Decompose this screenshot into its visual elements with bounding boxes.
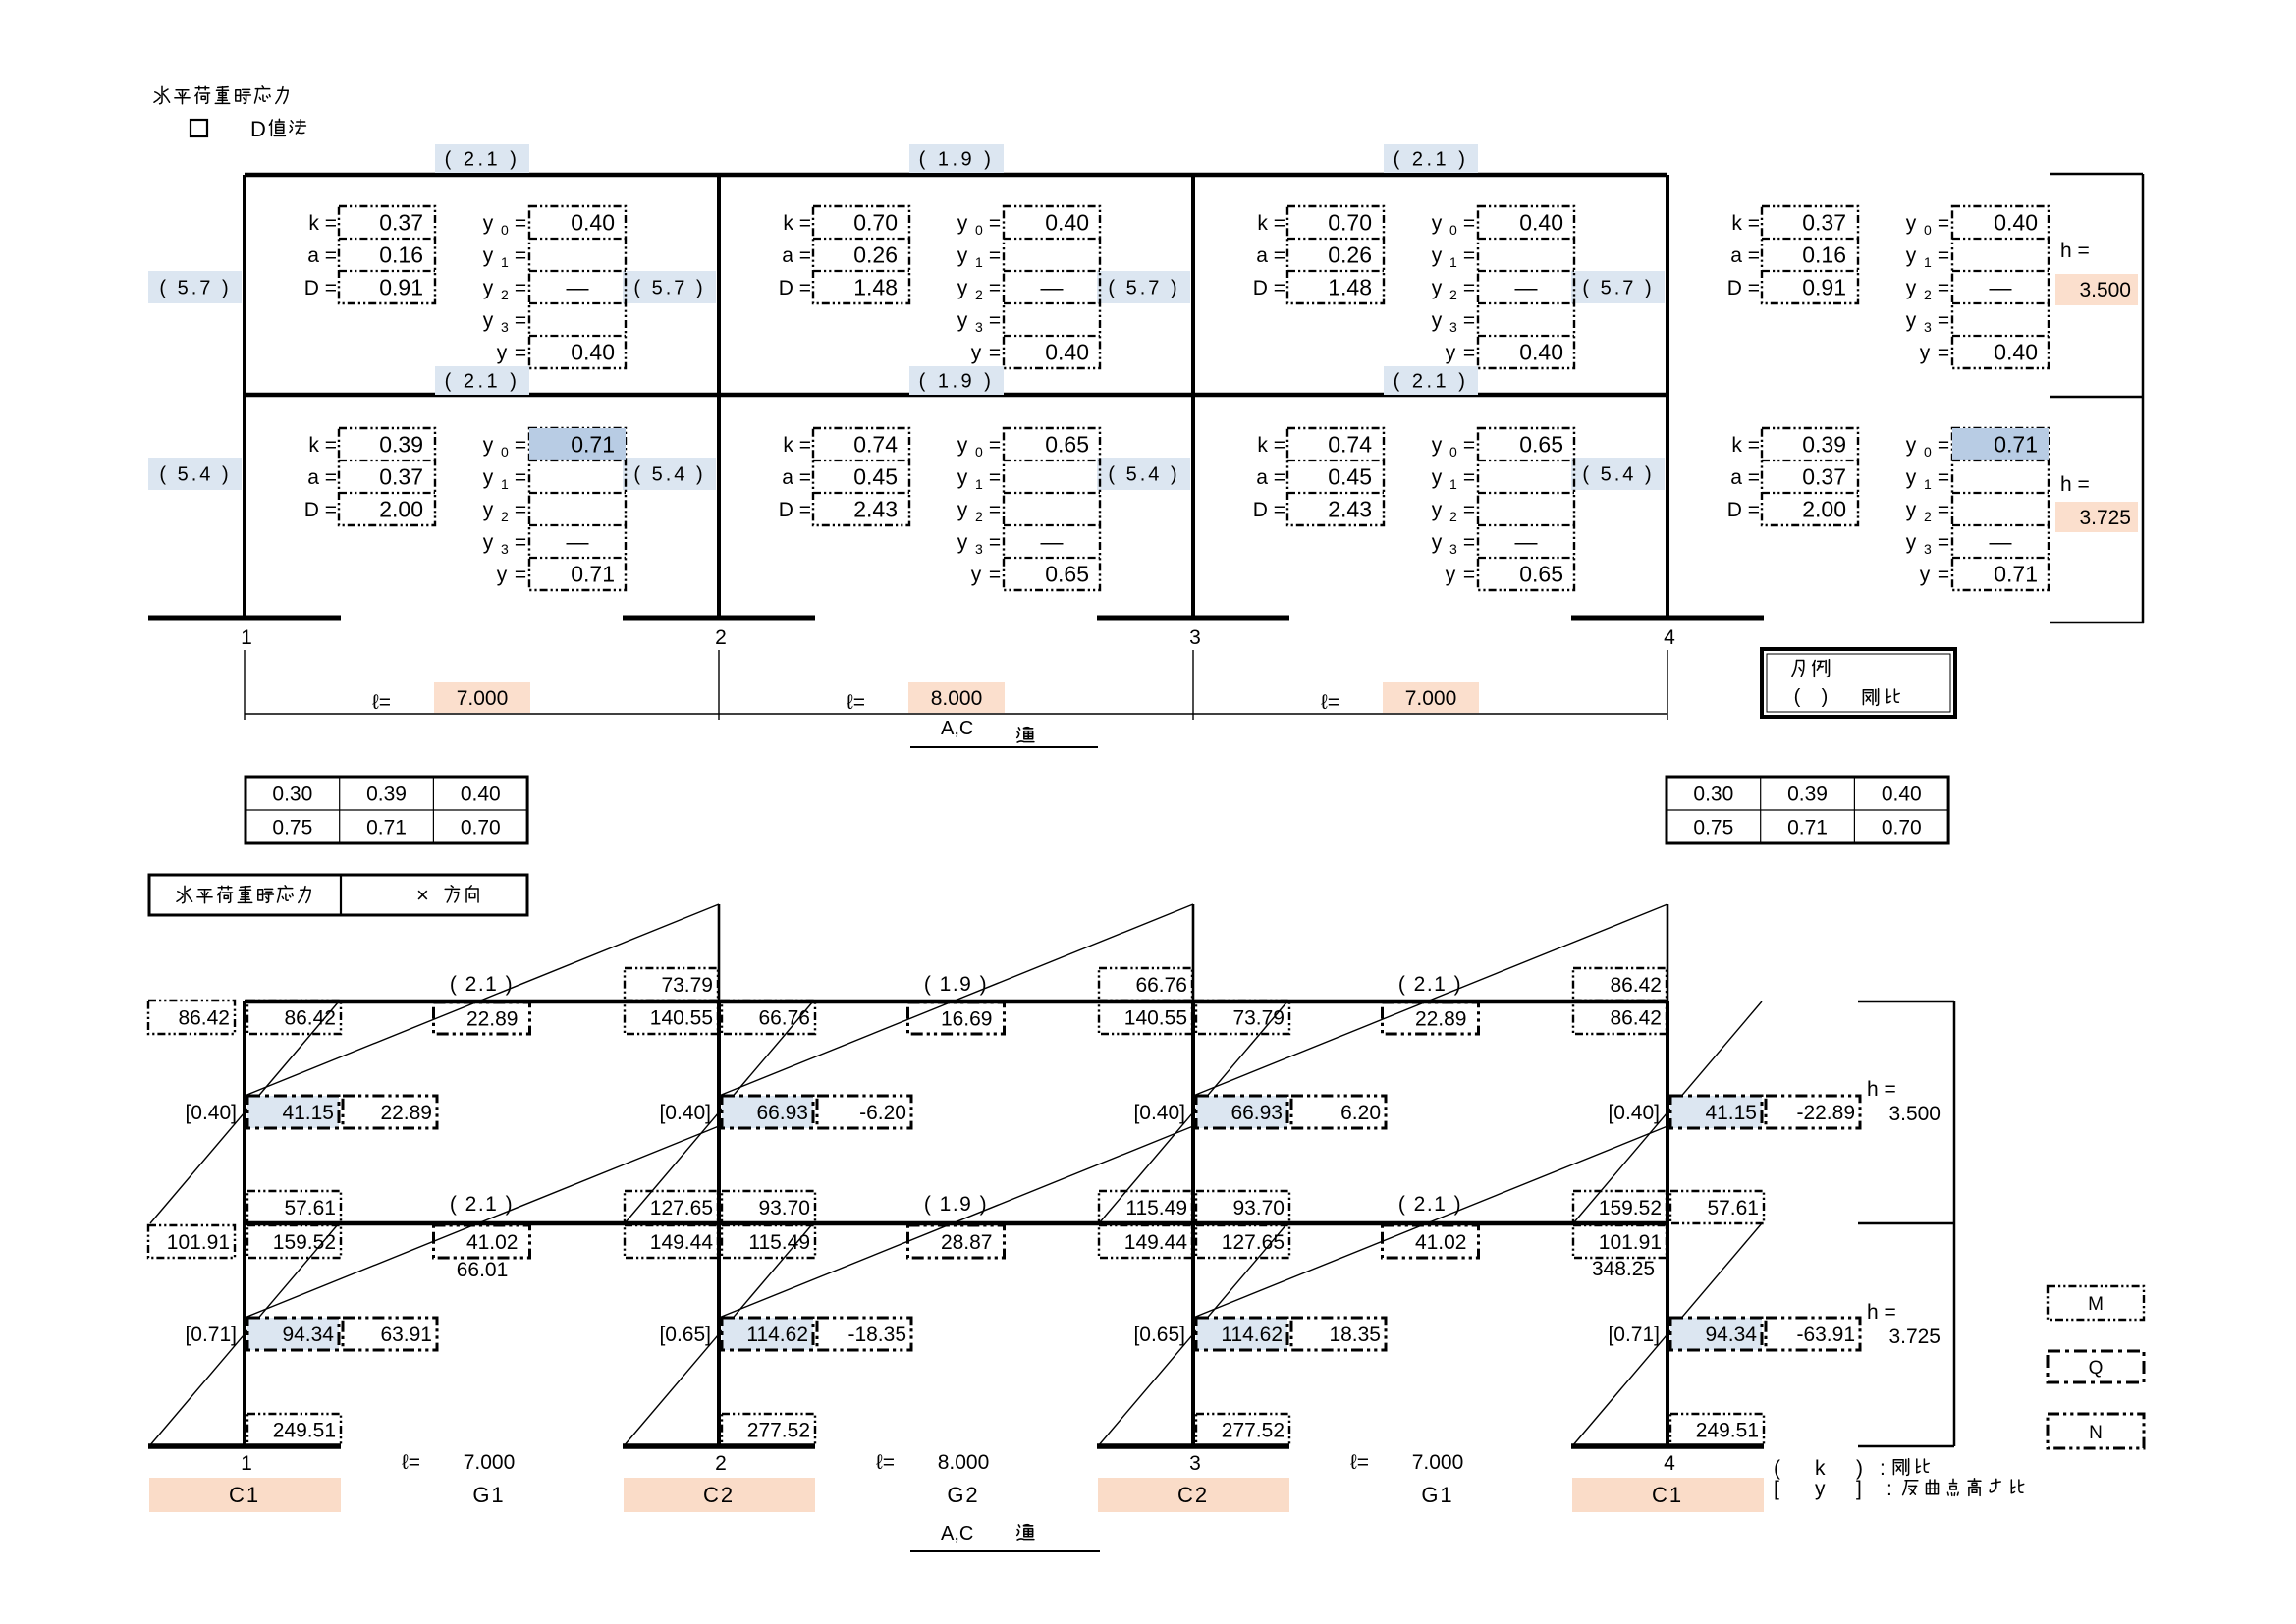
svg-text:0.40: 0.40	[1882, 784, 1922, 806]
svg-text:Q: Q	[2089, 1358, 2104, 1379]
svg-text:=: =	[989, 244, 1001, 267]
svg-text:( 2.1 ): ( 2.1 )	[450, 973, 514, 996]
svg-text:=: =	[1938, 499, 1949, 521]
svg-text:2: 2	[975, 287, 983, 302]
svg-text:D =: D =	[1727, 499, 1760, 521]
svg-text:h =: h =	[1867, 1078, 1896, 1101]
svg-text:1: 1	[241, 1452, 252, 1475]
svg-text:0.40: 0.40	[1994, 210, 2038, 236]
svg-text:y: y	[957, 309, 968, 332]
svg-text:y: y	[1906, 244, 1917, 267]
svg-text:( 1.9 ): ( 1.9 )	[924, 1193, 988, 1216]
svg-text:0.40: 0.40	[1519, 210, 1563, 236]
svg-text:y: y	[957, 434, 968, 457]
svg-text:63.91: 63.91	[380, 1324, 432, 1346]
svg-text:y: y	[483, 244, 494, 267]
svg-text:y: y	[497, 564, 508, 586]
svg-text:0.39: 0.39	[1802, 432, 1846, 458]
svg-text:y: y	[1906, 434, 1917, 457]
svg-text::: :	[1880, 1457, 1886, 1480]
svg-text:=: =	[1463, 212, 1475, 235]
svg-text:k: k	[1815, 1457, 1826, 1480]
svg-text:2: 2	[1449, 287, 1457, 302]
svg-text:1: 1	[1449, 254, 1457, 270]
svg-text:y: y	[971, 564, 982, 586]
svg-text:y: y	[957, 277, 968, 299]
svg-text:( 2.1 ): ( 2.1 )	[445, 149, 520, 171]
svg-text:41.15: 41.15	[1705, 1102, 1757, 1124]
svg-text:8.000: 8.000	[931, 687, 983, 710]
svg-text:[0.65]: [0.65]	[659, 1324, 711, 1346]
svg-text:=: =	[989, 212, 1001, 235]
svg-text:41.02: 41.02	[1415, 1231, 1467, 1254]
svg-text:73.79: 73.79	[661, 974, 713, 997]
svg-text:140.55: 140.55	[1124, 1007, 1187, 1030]
svg-text:66.93: 66.93	[756, 1102, 808, 1124]
svg-text:C1: C1	[229, 1483, 260, 1507]
svg-text:=: =	[1938, 342, 1949, 364]
svg-text:y: y	[1906, 212, 1917, 235]
svg-text:348.25: 348.25	[1592, 1258, 1655, 1280]
svg-text:y: y	[1906, 466, 1917, 489]
svg-text:0: 0	[501, 222, 509, 238]
svg-text:1: 1	[241, 626, 252, 649]
svg-text:57.61: 57.61	[1707, 1197, 1759, 1219]
svg-text:0.16: 0.16	[379, 243, 423, 268]
svg-text:3.725: 3.725	[2079, 507, 2131, 529]
svg-text:101.91: 101.91	[167, 1231, 230, 1254]
svg-text:a =: a =	[1730, 466, 1760, 489]
svg-text:h =: h =	[1867, 1301, 1896, 1324]
svg-text:249.51: 249.51	[1696, 1420, 1759, 1442]
svg-text:=: =	[1463, 564, 1475, 586]
svg-text:=: =	[1938, 466, 1949, 489]
svg-text:=: =	[515, 277, 526, 299]
svg-text:0.40: 0.40	[461, 784, 501, 806]
svg-text:( 2.1 ): ( 2.1 )	[1398, 1193, 1462, 1216]
svg-text:22.89: 22.89	[1415, 1008, 1467, 1031]
svg-text:a =: a =	[307, 466, 337, 489]
svg-text:0.40: 0.40	[1045, 210, 1089, 236]
svg-text:ℓ=: ℓ=	[876, 1451, 895, 1474]
svg-text:2: 2	[1924, 509, 1932, 524]
svg-text:( 1.9 ): ( 1.9 )	[924, 973, 988, 996]
svg-text:y: y	[497, 342, 508, 364]
svg-text:94.34: 94.34	[1705, 1324, 1757, 1346]
svg-text:1: 1	[975, 476, 983, 492]
svg-text:a =: a =	[782, 244, 811, 267]
svg-text:[: [	[1774, 1478, 1779, 1500]
svg-text:115.49: 115.49	[1125, 1197, 1187, 1219]
svg-text:249.51: 249.51	[273, 1420, 336, 1442]
svg-text:127.65: 127.65	[1222, 1231, 1285, 1254]
svg-text:0.65: 0.65	[1519, 432, 1563, 458]
svg-text:y: y	[1432, 531, 1443, 554]
svg-text:=: =	[989, 564, 1001, 586]
svg-text:=: =	[515, 434, 526, 457]
svg-text:( 2.1 ): ( 2.1 )	[1394, 371, 1469, 393]
svg-text:ℓ=: ℓ=	[1350, 1451, 1369, 1474]
svg-text:1: 1	[975, 254, 983, 270]
svg-text:0: 0	[501, 444, 509, 460]
svg-text:G1: G1	[1421, 1483, 1453, 1507]
svg-text:3.500: 3.500	[2079, 279, 2131, 301]
svg-text:=: =	[989, 434, 1001, 457]
svg-text:y: y	[1906, 531, 1917, 554]
svg-text:A,C: A,C	[941, 718, 973, 739]
svg-text:0: 0	[1449, 222, 1457, 238]
svg-text:D =: D =	[1727, 277, 1760, 299]
svg-text:22.89: 22.89	[466, 1008, 519, 1031]
svg-text:0.70: 0.70	[461, 817, 501, 839]
svg-text:=: =	[989, 531, 1001, 554]
svg-text:3: 3	[1449, 541, 1457, 557]
svg-text:y: y	[1906, 277, 1917, 299]
svg-text:0.71: 0.71	[1994, 432, 2038, 458]
svg-text:0.40: 0.40	[571, 340, 615, 365]
svg-text:4: 4	[1664, 626, 1675, 649]
svg-text:2: 2	[1924, 287, 1932, 302]
svg-text:277.52: 277.52	[747, 1420, 810, 1442]
svg-text:=: =	[515, 244, 526, 267]
svg-text:): )	[1856, 1457, 1863, 1480]
svg-text:3: 3	[1924, 319, 1932, 335]
svg-text:=: =	[1938, 212, 1949, 235]
svg-text:=: =	[515, 564, 526, 586]
svg-text:k =: k =	[1731, 434, 1760, 457]
svg-text:86.42: 86.42	[1610, 1007, 1662, 1030]
svg-text:M: M	[2088, 1294, 2104, 1315]
svg-text:[0.40]: [0.40]	[1608, 1102, 1660, 1124]
svg-text:0.65: 0.65	[1045, 432, 1089, 458]
svg-text:( 5.4 ): ( 5.4 )	[1582, 464, 1654, 486]
svg-text:G1: G1	[472, 1483, 505, 1507]
svg-text:=: =	[1938, 564, 1949, 586]
svg-text:k =: k =	[1257, 212, 1285, 235]
svg-text:( 1.9 ): ( 1.9 )	[919, 149, 995, 171]
svg-text:[0.40]: [0.40]	[1133, 1102, 1185, 1124]
svg-text:86.42: 86.42	[284, 1007, 336, 1030]
svg-text:( 2.1 ): ( 2.1 )	[1398, 973, 1462, 996]
svg-text:2: 2	[715, 1452, 727, 1475]
svg-text:=: =	[1938, 434, 1949, 457]
svg-text:( 5.7 ): ( 5.7 )	[159, 278, 231, 299]
svg-text:y: y	[1432, 499, 1443, 521]
svg-text:D =: D =	[779, 499, 811, 521]
svg-text:y: y	[1432, 244, 1443, 267]
svg-text:=: =	[1938, 277, 1949, 299]
svg-text:ℓ=: ℓ=	[1321, 691, 1339, 714]
svg-text:7.000: 7.000	[1412, 1451, 1464, 1474]
svg-text:=: =	[989, 277, 1001, 299]
svg-text:k =: k =	[1731, 212, 1760, 235]
svg-text:0.26: 0.26	[853, 243, 898, 268]
svg-text:0.37: 0.37	[379, 210, 423, 236]
svg-text:0.75: 0.75	[1693, 817, 1733, 839]
svg-text:( 5.4 ): ( 5.4 )	[633, 464, 705, 486]
svg-text:73.79: 73.79	[1232, 1007, 1285, 1030]
svg-text:=: =	[515, 499, 526, 521]
svg-text:[0.40]: [0.40]	[659, 1102, 711, 1124]
svg-text:2: 2	[1449, 509, 1457, 524]
svg-text:―: ―	[1041, 529, 1064, 555]
svg-text:28.87: 28.87	[941, 1231, 993, 1254]
svg-text:=: =	[1463, 466, 1475, 489]
svg-text:2.00: 2.00	[379, 497, 423, 522]
svg-text:1.48: 1.48	[1328, 275, 1372, 300]
svg-text:140.55: 140.55	[650, 1007, 713, 1030]
svg-text:7.000: 7.000	[464, 1451, 516, 1474]
svg-text:115.49: 115.49	[748, 1231, 810, 1254]
svg-text:( 2.1 ): ( 2.1 )	[1394, 149, 1469, 171]
svg-text:y: y	[1920, 564, 1931, 586]
svg-text:a =: a =	[307, 244, 337, 267]
svg-text:ℓ=: ℓ=	[372, 691, 391, 714]
svg-text:y: y	[1432, 466, 1443, 489]
svg-text:127.65: 127.65	[650, 1197, 713, 1219]
svg-text:―: ―	[1990, 275, 2012, 300]
svg-text:86.42: 86.42	[178, 1007, 230, 1030]
svg-text:114.62: 114.62	[1221, 1324, 1283, 1346]
svg-text:0.39: 0.39	[379, 432, 423, 458]
svg-text:G2: G2	[947, 1483, 979, 1507]
svg-text:22.89: 22.89	[380, 1102, 432, 1124]
svg-text:=: =	[1463, 342, 1475, 364]
svg-text:-63.91: -63.91	[1796, 1324, 1855, 1346]
svg-text:0.40: 0.40	[1994, 340, 2038, 365]
svg-text:y: y	[957, 531, 968, 554]
svg-text:0.71: 0.71	[1994, 562, 2038, 587]
svg-text:D =: D =	[779, 277, 811, 299]
svg-text:159.52: 159.52	[273, 1231, 336, 1254]
svg-text:―: ―	[567, 275, 589, 300]
svg-text:0.37: 0.37	[1802, 210, 1846, 236]
svg-text:0: 0	[975, 222, 983, 238]
svg-text:0.74: 0.74	[853, 432, 898, 458]
svg-text:y: y	[483, 309, 494, 332]
svg-text:―: ―	[1990, 529, 2012, 555]
svg-text:0.37: 0.37	[1802, 464, 1846, 490]
svg-text:0.71: 0.71	[1787, 817, 1828, 839]
svg-text:7.000: 7.000	[1405, 687, 1457, 710]
svg-text:18.35: 18.35	[1329, 1324, 1381, 1346]
svg-text:D =: D =	[1253, 499, 1285, 521]
svg-text:2.00: 2.00	[1802, 497, 1846, 522]
svg-text:y: y	[1432, 434, 1443, 457]
svg-text:1: 1	[501, 254, 509, 270]
svg-text:y: y	[483, 434, 494, 457]
svg-text:-22.89: -22.89	[1796, 1102, 1855, 1124]
svg-text:D: D	[250, 117, 266, 141]
svg-text:0.71: 0.71	[571, 562, 615, 587]
svg-text:=: =	[515, 466, 526, 489]
svg-text:6.20: 6.20	[1340, 1102, 1381, 1124]
svg-text:0.16: 0.16	[1802, 243, 1846, 268]
svg-text:( 5.4 ): ( 5.4 )	[1108, 464, 1179, 486]
svg-text:y: y	[1432, 212, 1443, 235]
svg-text:y: y	[483, 212, 494, 235]
svg-text:0.40: 0.40	[1519, 340, 1563, 365]
svg-text:y: y	[483, 531, 494, 554]
svg-text:0.37: 0.37	[379, 464, 423, 490]
svg-text:A,C: A,C	[941, 1523, 973, 1544]
svg-text:3: 3	[501, 319, 509, 335]
svg-text:2: 2	[975, 509, 983, 524]
svg-text:7.000: 7.000	[457, 687, 509, 710]
svg-text:=: =	[515, 212, 526, 235]
svg-text:k =: k =	[308, 212, 337, 235]
svg-text:66.76: 66.76	[1135, 974, 1187, 997]
svg-text:―: ―	[1041, 275, 1064, 300]
svg-text:0: 0	[975, 444, 983, 460]
svg-text:=: =	[515, 342, 526, 364]
svg-text:0: 0	[1924, 222, 1932, 238]
svg-text:2: 2	[501, 509, 509, 524]
svg-text:0.40: 0.40	[571, 210, 615, 236]
svg-text:0.65: 0.65	[1519, 562, 1563, 587]
svg-text:3: 3	[1189, 626, 1201, 649]
svg-text:[0.71]: [0.71]	[1608, 1324, 1660, 1346]
svg-text:86.42: 86.42	[1610, 974, 1662, 997]
svg-text:=: =	[989, 342, 1001, 364]
svg-text:0.75: 0.75	[272, 817, 312, 839]
svg-text:D =: D =	[304, 277, 337, 299]
svg-text:y: y	[483, 277, 494, 299]
svg-text:159.52: 159.52	[1599, 1197, 1662, 1219]
svg-text:=: =	[1463, 277, 1475, 299]
svg-text:=: =	[1463, 531, 1475, 554]
svg-text:k =: k =	[308, 434, 337, 457]
svg-text:2.43: 2.43	[1328, 497, 1372, 522]
svg-text:3: 3	[1189, 1452, 1201, 1475]
svg-text:k =: k =	[1257, 434, 1285, 457]
svg-text:0: 0	[1449, 444, 1457, 460]
svg-text:y: y	[1432, 277, 1443, 299]
svg-text:×: ×	[416, 883, 429, 907]
svg-text:2: 2	[715, 626, 727, 649]
svg-text:0.91: 0.91	[1802, 275, 1846, 300]
svg-text:y: y	[1446, 342, 1456, 364]
svg-text:=: =	[1463, 434, 1475, 457]
svg-text:=: =	[1463, 309, 1475, 332]
svg-text:3.725: 3.725	[1888, 1326, 1941, 1348]
svg-text:66.76: 66.76	[758, 1007, 810, 1030]
svg-text:y: y	[483, 499, 494, 521]
svg-text:66.01: 66.01	[457, 1259, 509, 1281]
svg-text:0.30: 0.30	[272, 784, 312, 806]
svg-text:y: y	[1815, 1478, 1826, 1500]
svg-text:=: =	[1938, 309, 1949, 332]
svg-text:114.62: 114.62	[746, 1324, 808, 1346]
svg-text:y: y	[957, 499, 968, 521]
svg-text:1.48: 1.48	[853, 275, 898, 300]
svg-text:y: y	[1432, 309, 1443, 332]
svg-text:y: y	[1446, 564, 1456, 586]
svg-text::: :	[1886, 1478, 1892, 1500]
svg-text:k =: k =	[783, 434, 811, 457]
svg-text:3: 3	[501, 541, 509, 557]
svg-text:0.30: 0.30	[1693, 784, 1733, 806]
svg-text:0.74: 0.74	[1328, 432, 1372, 458]
svg-text:D =: D =	[304, 499, 337, 521]
svg-text:[0.71]: [0.71]	[185, 1324, 237, 1346]
svg-text:=: =	[1938, 531, 1949, 554]
svg-text:a =: a =	[1256, 466, 1285, 489]
svg-text:y: y	[957, 212, 968, 235]
svg-text:[0.65]: [0.65]	[1133, 1324, 1185, 1346]
svg-text:0.65: 0.65	[1045, 562, 1089, 587]
svg-text:ℓ=: ℓ=	[402, 1451, 420, 1474]
svg-text:0.39: 0.39	[366, 784, 407, 806]
svg-text:94.34: 94.34	[282, 1324, 334, 1346]
svg-text:1: 1	[501, 476, 509, 492]
svg-text:=: =	[515, 309, 526, 332]
svg-text:h =: h =	[2060, 473, 2090, 496]
svg-text:277.52: 277.52	[1222, 1420, 1285, 1442]
svg-text:3: 3	[1449, 319, 1457, 335]
svg-text:66.93: 66.93	[1230, 1102, 1283, 1124]
svg-text:149.44: 149.44	[1124, 1231, 1188, 1254]
svg-text:( 2.1 ): ( 2.1 )	[450, 1193, 514, 1216]
svg-text:y: y	[483, 466, 494, 489]
svg-text:a =: a =	[782, 466, 811, 489]
svg-text:=: =	[1938, 244, 1949, 267]
svg-text:(: (	[1774, 1457, 1780, 1480]
svg-text:0: 0	[1924, 444, 1932, 460]
svg-text:( 2.1 ): ( 2.1 )	[445, 371, 520, 393]
svg-text:1: 1	[1924, 476, 1932, 492]
svg-text:0.39: 0.39	[1787, 784, 1828, 806]
svg-text:N: N	[2089, 1423, 2103, 1443]
svg-text:( 5.7 ): ( 5.7 )	[633, 278, 705, 299]
svg-text:0.71: 0.71	[571, 432, 615, 458]
svg-text:( 5.7 ): ( 5.7 )	[1108, 278, 1179, 299]
svg-text:=: =	[989, 309, 1001, 332]
svg-text:( 5.4 ): ( 5.4 )	[159, 464, 231, 486]
svg-text:]: ]	[1856, 1478, 1862, 1500]
svg-text:y: y	[1906, 499, 1917, 521]
svg-text:0.70: 0.70	[1882, 817, 1922, 839]
svg-text:2.43: 2.43	[853, 497, 898, 522]
svg-text:―: ―	[1515, 529, 1538, 555]
svg-text:D =: D =	[1253, 277, 1285, 299]
svg-text:0.70: 0.70	[1328, 210, 1372, 236]
svg-text:8.000: 8.000	[938, 1451, 990, 1474]
svg-text:=: =	[1463, 244, 1475, 267]
svg-text:3: 3	[1924, 541, 1932, 557]
svg-text:57.61: 57.61	[284, 1197, 336, 1219]
svg-text:3: 3	[975, 541, 983, 557]
svg-text:( 1.9 ): ( 1.9 )	[919, 371, 995, 393]
svg-text:-18.35: -18.35	[847, 1324, 906, 1346]
svg-text:y: y	[971, 342, 982, 364]
svg-text:0.45: 0.45	[853, 464, 898, 490]
svg-text:C2: C2	[1177, 1483, 1209, 1507]
svg-text:( 5.7 ): ( 5.7 )	[1582, 278, 1654, 299]
svg-text:0.40: 0.40	[1045, 340, 1089, 365]
svg-text:―: ―	[1515, 275, 1538, 300]
svg-text:C2: C2	[703, 1483, 735, 1507]
svg-text:41.15: 41.15	[282, 1102, 334, 1124]
svg-text:1: 1	[1924, 254, 1932, 270]
svg-text:3: 3	[975, 319, 983, 335]
svg-text:16.69: 16.69	[941, 1008, 993, 1031]
svg-text:[0.40]: [0.40]	[185, 1102, 237, 1124]
svg-text:41.02: 41.02	[466, 1231, 519, 1254]
svg-text:=: =	[989, 499, 1001, 521]
svg-text:=: =	[989, 466, 1001, 489]
svg-text:0.45: 0.45	[1328, 464, 1372, 490]
